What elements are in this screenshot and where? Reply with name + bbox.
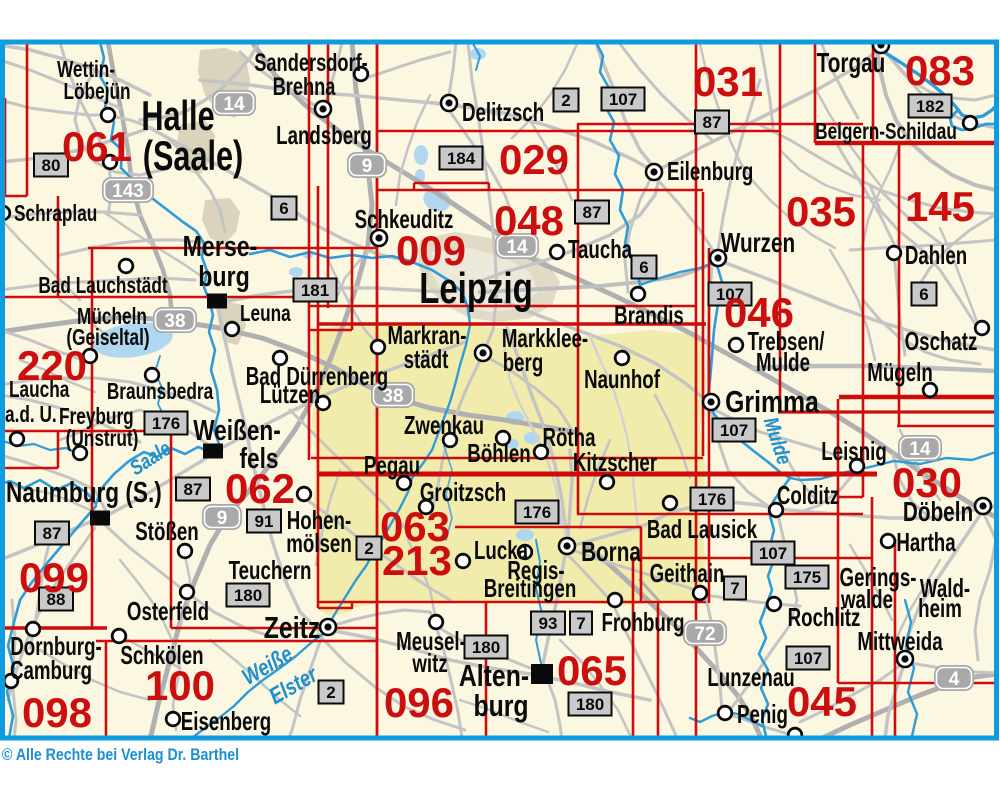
svg-text:Dahlen: Dahlen (905, 240, 967, 270)
svg-text:(Saale): (Saale) (143, 132, 243, 179)
svg-text:berg: berg (503, 347, 544, 377)
svg-text:Brehna: Brehna (273, 72, 337, 101)
svg-text:2: 2 (561, 91, 570, 110)
svg-text:107: 107 (609, 90, 637, 109)
svg-text:Osterfeld: Osterfeld (127, 596, 209, 626)
svg-text:180: 180 (576, 695, 604, 714)
svg-text:062: 062 (225, 465, 295, 512)
svg-text:009: 009 (396, 227, 466, 274)
svg-text:046: 046 (724, 289, 794, 336)
svg-text:035: 035 (786, 188, 856, 235)
svg-text:176: 176 (523, 503, 551, 522)
svg-text:4: 4 (949, 669, 960, 690)
svg-text:030: 030 (892, 459, 962, 506)
svg-text:14: 14 (223, 94, 245, 115)
svg-text:065: 065 (557, 647, 627, 694)
svg-text:Schraplau: Schraplau (14, 202, 97, 227)
svg-text:Camburg: Camburg (10, 655, 92, 685)
svg-text:72: 72 (694, 624, 715, 645)
svg-text:(Unstrut): (Unstrut) (66, 427, 139, 452)
svg-text:Merse-: Merse- (183, 229, 258, 262)
svg-text:031: 031 (693, 58, 763, 105)
svg-text:180: 180 (472, 638, 500, 657)
svg-text:Grimma: Grimma (725, 384, 819, 418)
svg-text:107: 107 (720, 421, 748, 440)
svg-text:Lützen: Lützen (260, 379, 320, 409)
svg-text:Breitingen: Breitingen (484, 573, 577, 603)
svg-text:Bad Lauchstädt: Bad Lauchstädt (38, 274, 167, 299)
svg-text:38: 38 (164, 311, 185, 332)
svg-text:Zwenkau: Zwenkau (404, 410, 484, 440)
svg-text:Bad Lausick: Bad Lausick (647, 514, 758, 544)
svg-text:145: 145 (905, 183, 975, 230)
svg-text:176: 176 (152, 414, 180, 433)
svg-text:a.d. U.: a.d. U. (5, 403, 57, 428)
svg-text:Oschatz: Oschatz (905, 326, 978, 356)
svg-text:Taucha: Taucha (568, 234, 632, 264)
svg-text:Zeitz: Zeitz (264, 610, 320, 644)
svg-text:91: 91 (255, 512, 274, 531)
svg-text:Braunsbedra: Braunsbedra (107, 380, 214, 405)
svg-text:184: 184 (447, 149, 476, 168)
svg-text:Naunhof: Naunhof (584, 364, 660, 394)
svg-text:048: 048 (494, 197, 564, 244)
svg-text:7: 7 (576, 614, 585, 633)
svg-text:2: 2 (364, 539, 373, 558)
svg-text:Löbejün: Löbejün (63, 80, 130, 105)
svg-text:Mittweida: Mittweida (857, 626, 943, 656)
svg-text:045: 045 (787, 678, 857, 725)
svg-text:098: 098 (22, 689, 92, 736)
svg-text:100: 100 (145, 662, 215, 709)
svg-text:93: 93 (539, 614, 558, 633)
svg-text:083: 083 (905, 47, 975, 94)
svg-text:87: 87 (184, 480, 203, 499)
svg-text:096: 096 (384, 679, 454, 726)
svg-text:175: 175 (793, 568, 821, 587)
svg-text:Leuna: Leuna (240, 302, 291, 327)
svg-text:061: 061 (62, 123, 132, 170)
svg-text:Eisenberg: Eisenberg (181, 706, 271, 736)
svg-text:029: 029 (499, 136, 569, 183)
svg-text:Torgau: Torgau (817, 48, 886, 79)
svg-text:Frohburg: Frohburg (601, 607, 684, 637)
svg-text:2: 2 (326, 683, 335, 702)
svg-text:80: 80 (42, 156, 61, 175)
svg-text:Stößen: Stößen (135, 516, 198, 546)
svg-text:87: 87 (703, 113, 722, 132)
svg-text:© Alle Rechte bei Verlag Dr. B: © Alle Rechte bei Verlag Dr. Barthel (2, 746, 239, 764)
svg-text:Landsberg: Landsberg (276, 120, 372, 150)
svg-text:9: 9 (362, 156, 373, 177)
svg-text:87: 87 (583, 203, 602, 222)
svg-text:7: 7 (730, 579, 739, 598)
svg-text:Belgern-Schildau: Belgern-Schildau (815, 120, 957, 145)
svg-text:107: 107 (759, 544, 787, 563)
svg-text:walde: walde (840, 584, 893, 614)
svg-text:Borna: Borna (581, 537, 641, 568)
svg-text:Leisnig: Leisnig (821, 436, 886, 466)
svg-text:Mulde: Mulde (756, 347, 810, 377)
svg-text:107: 107 (794, 649, 822, 668)
svg-text:Hartha: Hartha (896, 527, 956, 557)
svg-text:Pegau: Pegau (364, 450, 420, 480)
svg-text:Eilenburg: Eilenburg (667, 156, 753, 186)
svg-text:181: 181 (301, 281, 329, 300)
svg-text:6: 6 (279, 199, 288, 218)
svg-text:143: 143 (112, 181, 144, 202)
svg-text:Delitzsch: Delitzsch (462, 97, 544, 127)
svg-text:Geithain: Geithain (650, 558, 725, 588)
svg-text:burg: burg (473, 688, 528, 722)
svg-text:Mügeln: Mügeln (867, 357, 932, 387)
svg-text:mölsen: mölsen (286, 528, 351, 558)
svg-text:180: 180 (234, 586, 262, 605)
svg-text:Penig: Penig (737, 699, 788, 729)
svg-text:Kitzscher: Kitzscher (573, 447, 657, 477)
svg-text:Wurzen: Wurzen (721, 228, 795, 259)
svg-text:Lunzenau: Lunzenau (707, 662, 794, 692)
svg-text:182: 182 (916, 97, 944, 116)
svg-text:burg: burg (198, 259, 250, 292)
svg-text:220: 220 (17, 342, 87, 389)
svg-text:städt: städt (404, 344, 449, 374)
svg-text:Böhlen: Böhlen (467, 438, 530, 468)
svg-text:176: 176 (698, 490, 726, 509)
svg-text:213: 213 (382, 537, 452, 584)
svg-text:Brandis: Brandis (614, 300, 684, 330)
svg-text:heim: heim (918, 593, 962, 623)
svg-text:099: 099 (19, 554, 89, 601)
svg-text:6: 6 (639, 258, 648, 277)
svg-text:6: 6 (919, 285, 928, 304)
svg-text:Teuchern: Teuchern (229, 555, 312, 585)
svg-text:14: 14 (909, 439, 931, 460)
svg-text:witz: witz (412, 648, 448, 678)
svg-text:Colditz: Colditz (777, 480, 839, 510)
svg-text:87: 87 (43, 524, 62, 543)
